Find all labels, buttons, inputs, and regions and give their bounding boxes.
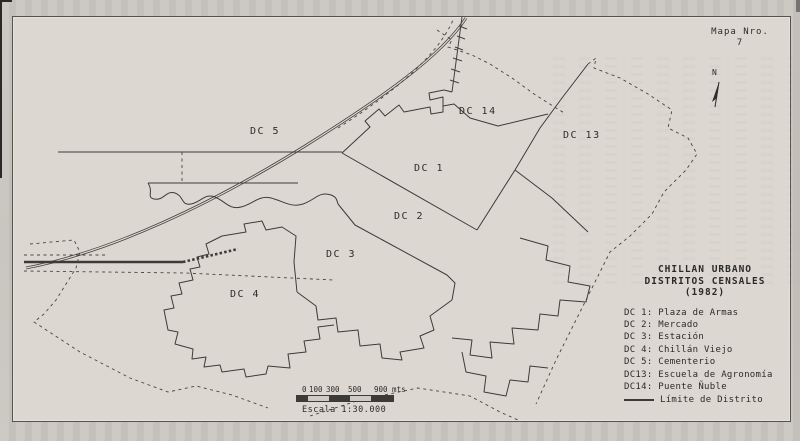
scale-caption: Escala 1:30.000 <box>296 405 416 415</box>
legend-title-line: CHILLAN URBANO <box>624 264 786 276</box>
legend-item: DC 3: Estación <box>624 331 786 343</box>
scale-bar: 0100300500900 mts Escala 1:30.000 <box>296 385 416 415</box>
district-label: DC 3 <box>326 249 356 260</box>
scale-ticks: 0100300500900 mts <box>296 385 416 394</box>
scale-tick-label: 100 <box>309 385 323 394</box>
legend-item: DC13: Escuela de Agronomía <box>624 369 786 381</box>
legend-item: DC 1: Plaza de Armas <box>624 307 786 319</box>
scale-bar-segment <box>297 396 308 401</box>
district-limit-line-sample <box>624 399 654 401</box>
legend-limit-label: Límite de Distrito <box>660 395 763 405</box>
legend-limit-row: Límite de Distrito <box>624 395 786 405</box>
legend-title: CHILLAN URBANODISTRITOS CENSALES(1982) <box>624 264 786 299</box>
scale-tick-label: 500 <box>348 385 362 394</box>
legend-item: DC 5: Cementerio <box>624 356 786 368</box>
district-label: DC 14 <box>459 106 497 117</box>
legend: CHILLAN URBANODISTRITOS CENSALES(1982) D… <box>624 264 786 405</box>
legend-items: DC 1: Plaza de ArmasDC 2: MercadoDC 3: E… <box>624 307 786 394</box>
scale-tick-label: 300 <box>326 385 340 394</box>
dc4-and-south-boundary <box>164 221 452 377</box>
district-label: DC 4 <box>230 289 260 300</box>
scanned-map-page: DC 5DC 14DC 1DC 13DC 2DC 3DC 4 Mapa Nro.… <box>0 0 800 441</box>
district-label: DC 5 <box>250 126 280 137</box>
district-label: DC 13 <box>563 130 601 141</box>
legend-item: DC14: Puente Ñuble <box>624 381 786 393</box>
district-label: DC 1 <box>414 163 444 174</box>
road-hatch-west <box>183 249 238 262</box>
district-label: DC 2 <box>394 211 424 222</box>
scale-bar-segment <box>308 396 329 401</box>
map-number-line1: Mapa Nro. <box>700 27 780 38</box>
scale-bar-segment <box>329 396 350 401</box>
scale-bar-segment <box>371 396 393 401</box>
map-number-line2: 7 <box>700 38 780 49</box>
southeast-blocks-boundary <box>452 238 590 396</box>
legend-item: DC 4: Chillán Viejo <box>624 344 786 356</box>
scale-bar-segment <box>350 396 371 401</box>
scale-bar-segments <box>296 395 394 402</box>
legend-title-line: (1982) <box>624 287 786 299</box>
scale-tick-label: 900 mts <box>374 385 406 394</box>
legend-item: DC 2: Mercado <box>624 319 786 331</box>
north-label: N <box>712 68 717 77</box>
district-boundaries <box>58 64 588 300</box>
legend-title-line: DISTRITOS CENSALES <box>624 276 786 288</box>
river-boundary <box>148 183 338 208</box>
urban-limit-dashed <box>24 20 697 420</box>
map-number: Mapa Nro. 7 <box>700 27 780 49</box>
north-arrow-icon <box>712 82 719 107</box>
scale-tick-label: 0 <box>302 385 307 394</box>
